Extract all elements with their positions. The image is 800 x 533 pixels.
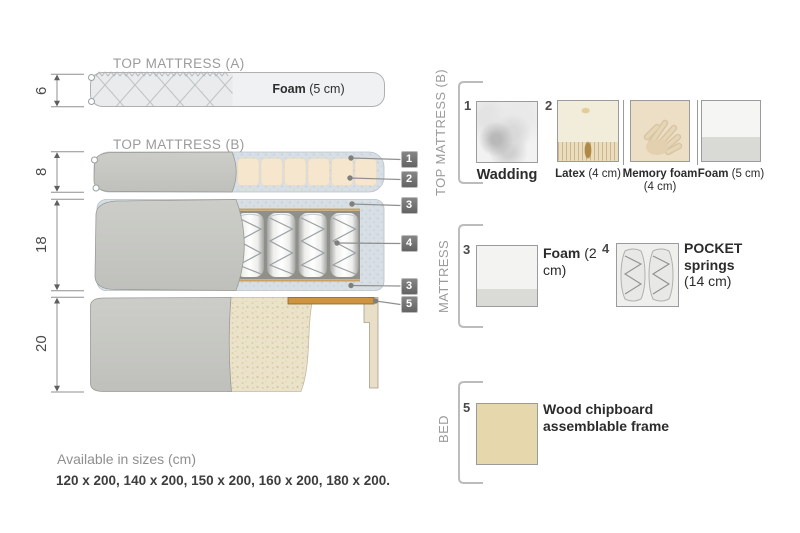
foam-2cm-swatch <box>476 245 538 307</box>
chipboard-label: Wood chipboard assemblable frame <box>543 401 683 434</box>
chipboard-swatch <box>476 403 538 465</box>
bottom-felt-line <box>234 279 360 281</box>
wood-slat <box>288 298 374 305</box>
callout-badge-5: 5 <box>401 296 418 313</box>
callout-badge-3-top: 3 <box>401 197 418 214</box>
wadding-label: Wadding <box>464 167 550 183</box>
top-mattress-a-title: TOP MATTRESS (A) <box>113 56 245 71</box>
callout-badge-3-bottom: 3 <box>401 278 418 295</box>
memory-foam-swatch <box>630 100 690 162</box>
latex-label-detail: (4 cm) <box>588 168 621 180</box>
foam-5cm-swatch <box>701 100 761 162</box>
legend-num-5: 5 <box>463 400 470 415</box>
mattress-infographic: TOP MATTRESS (A) TOP MATTRESS (B) Foam (… <box>0 0 800 533</box>
fabric-cover <box>91 298 232 392</box>
pocket-springs-label: POCKET springs (14 cm) <box>684 240 760 290</box>
top-mattress-b-shape <box>92 152 385 192</box>
foam-inline-rest: (5 cm) <box>306 82 345 96</box>
dimension-18: 18 <box>34 230 50 260</box>
latex-label: Latex (4 cm) <box>549 168 627 181</box>
fabric-cover <box>94 152 236 192</box>
memory-foam-label: Memory foam (4 cm) <box>622 168 698 194</box>
mattress-shape <box>95 200 384 291</box>
pocket-springs-icon <box>617 244 678 306</box>
pocket-springs-swatch <box>616 243 679 307</box>
pocket-springs-label-name: POCKET springs <box>684 240 742 273</box>
dimension-20: 20 <box>34 329 50 359</box>
top-felt-line <box>234 209 360 211</box>
foam-5cm-label: Foam (5 cm) <box>693 168 769 181</box>
dimension-lines <box>51 74 84 392</box>
dimension-6: 6 <box>34 75 50 106</box>
latex-label-name: Latex <box>555 168 585 180</box>
legend-num-4: 4 <box>602 241 609 256</box>
latex-swatch <box>557 100 619 162</box>
foam-inline-label: Foam (5 cm) <box>232 82 385 96</box>
bed-shape <box>91 298 379 392</box>
wadding-swatch <box>476 101 538 163</box>
foam-5cm-label-name: Foam <box>698 168 729 180</box>
legend-section-title-mattress: MATTRESS <box>436 226 451 326</box>
chipboard-body <box>228 298 313 392</box>
legend-num-2: 2 <box>545 98 552 113</box>
memory-foam-label-detail: (4 cm) <box>644 181 677 193</box>
sizes-title: Available in sizes (cm) <box>57 451 196 467</box>
callout-badge-2: 2 <box>401 171 418 188</box>
foam-5cm-label-detail: (5 cm) <box>732 168 765 180</box>
callout-badge-1: 1 <box>401 151 418 168</box>
zipper-pull-icon <box>89 75 95 81</box>
callout-badge-4: 4 <box>401 235 418 252</box>
quilted-wadding-half <box>91 73 233 107</box>
legend-num-1: 1 <box>464 98 471 113</box>
legend-section-title-top-mattress-b: TOP MATTRESS (B) <box>433 70 448 194</box>
legend-section-title-bed: BED <box>436 399 451 459</box>
dimension-8: 8 <box>34 157 50 187</box>
zipper-pull-icon <box>93 185 99 191</box>
top-mattress-b-title: TOP MATTRESS (B) <box>113 137 245 152</box>
legend-num-3: 3 <box>463 242 470 257</box>
memory-foam-label-name: Memory foam <box>623 168 698 180</box>
fabric-cover <box>95 200 244 291</box>
pocket-springs-label-detail: (14 cm) <box>684 273 760 290</box>
zipper-pull-icon <box>89 99 95 105</box>
hand-imprint-icon <box>631 101 689 161</box>
frame-side-rail <box>364 298 378 389</box>
foam-2cm-label-name: Foam <box>543 245 580 261</box>
foam-inline-bold: Foam <box>272 82 305 96</box>
sizes-list: 120 x 200, 140 x 200, 150 x 200, 160 x 2… <box>56 473 390 488</box>
zipper-pull-icon <box>92 157 98 163</box>
